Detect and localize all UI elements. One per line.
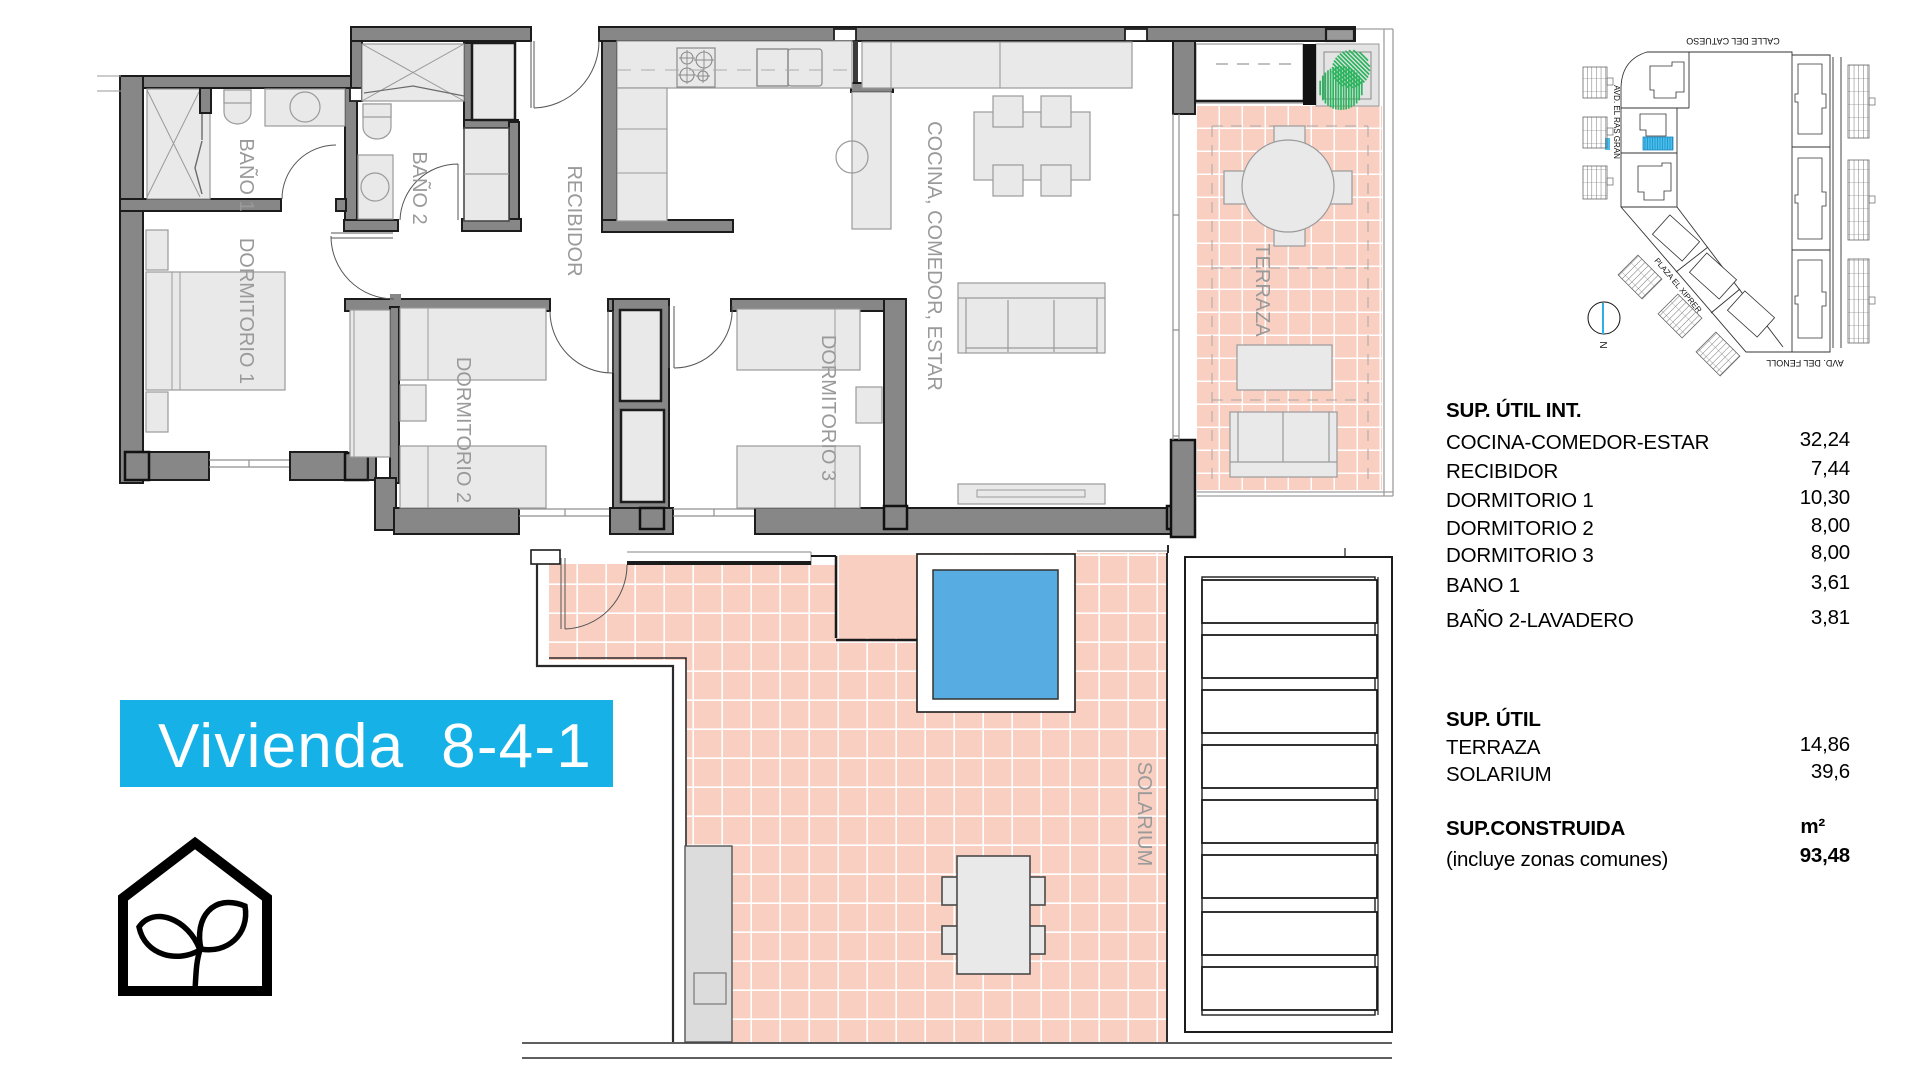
svg-text:DORMITORIO 3: DORMITORIO 3 (817, 335, 839, 481)
svg-text:SUP.CONSTRUIDA: SUP.CONSTRUIDA (1446, 817, 1625, 840)
svg-text:8,00: 8,00 (1811, 514, 1850, 537)
svg-text:SOLARIUM: SOLARIUM (1446, 763, 1551, 786)
svg-text:3,61: 3,61 (1811, 571, 1850, 594)
svg-text:SUP. ÚTIL INT.: SUP. ÚTIL INT. (1446, 398, 1581, 422)
svg-text:CALLE DEL CATUESO: CALLE DEL CATUESO (1686, 36, 1780, 46)
svg-text:8,00: 8,00 (1811, 541, 1850, 564)
svg-text:14,86: 14,86 (1800, 733, 1850, 756)
svg-text:BANO 1: BANO 1 (1446, 574, 1520, 597)
svg-text:SOLARIUM: SOLARIUM (1133, 762, 1155, 866)
svg-text:COCINA-COMEDOR-ESTAR: COCINA-COMEDOR-ESTAR (1446, 431, 1709, 454)
svg-text:DORMITORIO 2: DORMITORIO 2 (1446, 517, 1594, 540)
svg-text:10,30: 10,30 (1800, 486, 1850, 509)
svg-text:N: N (1597, 341, 1608, 348)
svg-text:93,48: 93,48 (1800, 844, 1850, 867)
svg-text:(incluye zonas comunes): (incluye zonas comunes) (1446, 848, 1668, 871)
svg-text:32,24: 32,24 (1800, 428, 1850, 451)
svg-text:m²: m² (1800, 815, 1825, 838)
svg-text:COCINA, COMEDOR, ESTAR: COCINA, COMEDOR, ESTAR (923, 121, 945, 391)
svg-text:BAÑO 2: BAÑO 2 (408, 151, 432, 224)
svg-text:RECIBIDOR: RECIBIDOR (1446, 460, 1558, 483)
svg-text:SUP. ÚTIL: SUP. ÚTIL (1446, 707, 1541, 731)
svg-text:DORMITORIO 1: DORMITORIO 1 (1446, 489, 1594, 512)
svg-text:3,81: 3,81 (1811, 606, 1850, 629)
svg-text:DORMITORIO 2: DORMITORIO 2 (452, 357, 474, 503)
svg-text:7,44: 7,44 (1811, 457, 1850, 480)
svg-text:BAÑO 1: BAÑO 1 (235, 138, 259, 211)
svg-text:AVD. DEL FENOLL: AVD. DEL FENOLL (1766, 358, 1844, 368)
svg-text:AVD. EL RAS GRAN: AVD. EL RAS GRAN (1612, 85, 1621, 159)
svg-text:39,6: 39,6 (1811, 760, 1850, 783)
svg-text:DORMITORIO 1: DORMITORIO 1 (235, 238, 257, 384)
svg-text:TERRAZA: TERRAZA (1446, 736, 1541, 759)
svg-text:BAÑO 2-LAVADERO: BAÑO 2-LAVADERO (1446, 609, 1634, 632)
svg-text:TERRAZA: TERRAZA (1251, 243, 1273, 337)
svg-text:Vivienda 8-4-1: Vivienda 8-4-1 (158, 712, 592, 781)
svg-text:DORMITORIO 3: DORMITORIO 3 (1446, 544, 1594, 567)
svg-text:RECIBIDOR: RECIBIDOR (563, 165, 585, 276)
